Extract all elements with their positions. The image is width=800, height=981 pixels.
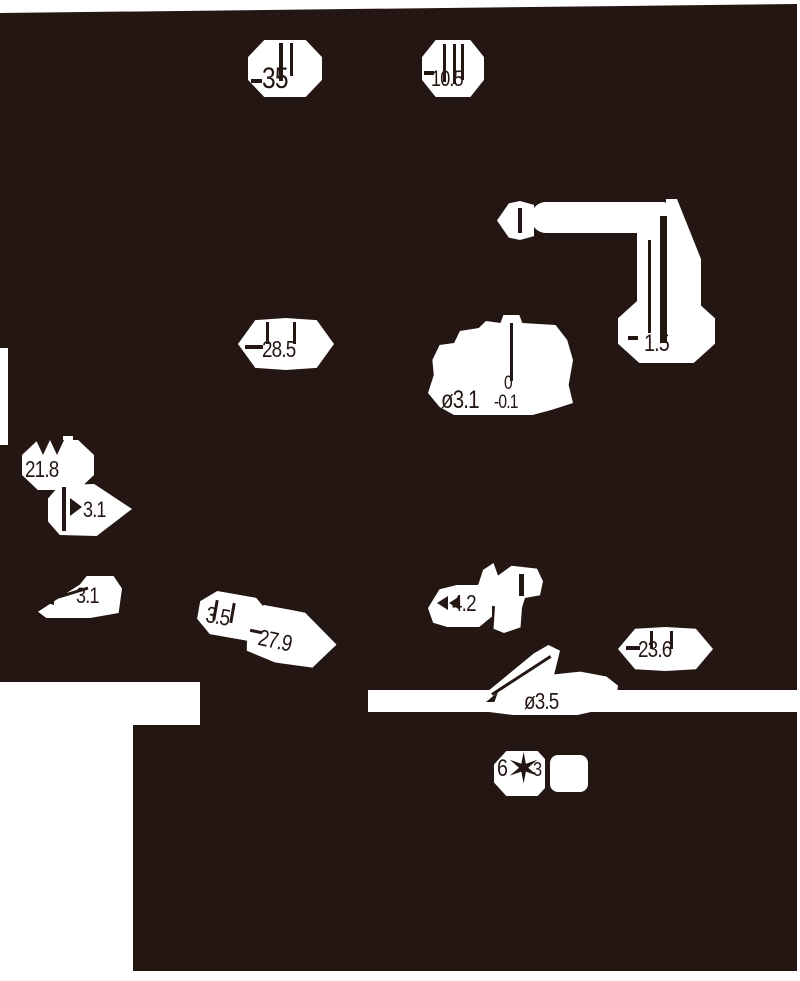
ext-line xyxy=(62,487,66,531)
dim-dia-3-5: ø3.5 xyxy=(524,690,558,713)
dim-3-1a: 3.1 xyxy=(83,499,106,521)
dim-21-8: 21.8 xyxy=(25,458,58,481)
dim-dia-3-1: ø3.1 xyxy=(441,388,479,413)
dim-35: 35 xyxy=(262,64,288,94)
arrow-tick xyxy=(518,208,522,233)
dim-28-5: 28.5 xyxy=(262,338,295,361)
dim-10-5: 10.5 xyxy=(431,68,463,90)
tolerance-lower: -0.1 xyxy=(494,393,518,412)
ext-line xyxy=(519,574,524,596)
dim-line xyxy=(245,345,263,349)
dim-4-2: 4.2 xyxy=(452,592,476,615)
dim-1-5: 1.5 xyxy=(644,332,669,356)
drawing-canvas: ✶ 35 10.5 1.5 28.5 ø3.1 0 -0.1 21.8 3.1 … xyxy=(0,0,800,981)
dim-6-3-right: 3 xyxy=(533,760,541,780)
tolerance-upper: 0 xyxy=(504,374,512,393)
ext-line xyxy=(290,43,293,76)
page-edge-left-sliver xyxy=(0,348,8,445)
dim-line xyxy=(251,79,262,83)
dim-3-1b: 3.1 xyxy=(76,585,99,607)
ext-line xyxy=(660,216,667,343)
ext-line xyxy=(648,240,651,333)
dim-23-6: 23.6 xyxy=(638,638,671,661)
callout-63-box xyxy=(550,755,588,792)
dim-line xyxy=(628,336,638,340)
divider-line xyxy=(545,752,550,795)
dim-3-5: 3.5 xyxy=(204,603,231,630)
dim-6-3-left: 6 xyxy=(497,757,507,781)
